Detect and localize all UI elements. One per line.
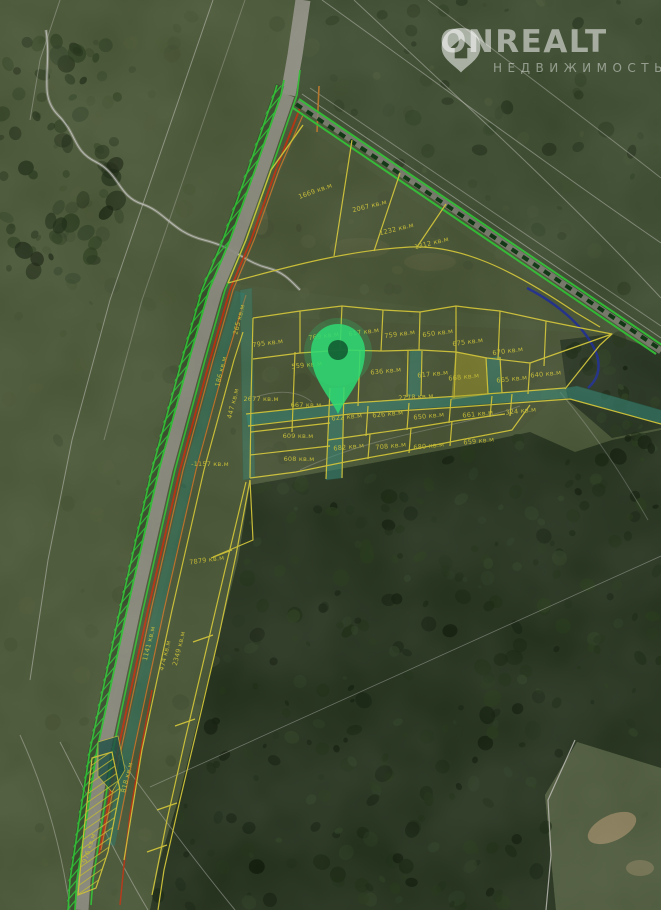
satellite-map[interactable]: 1669 кв.м2067 кв.м1232 кв.м1312 кв.м795 … [0,0,661,910]
map-viewport[interactable]: 1669 кв.м2067 кв.м1232 кв.м1312 кв.м795 … [0,0,661,910]
light-patches-overlay [0,0,661,910]
